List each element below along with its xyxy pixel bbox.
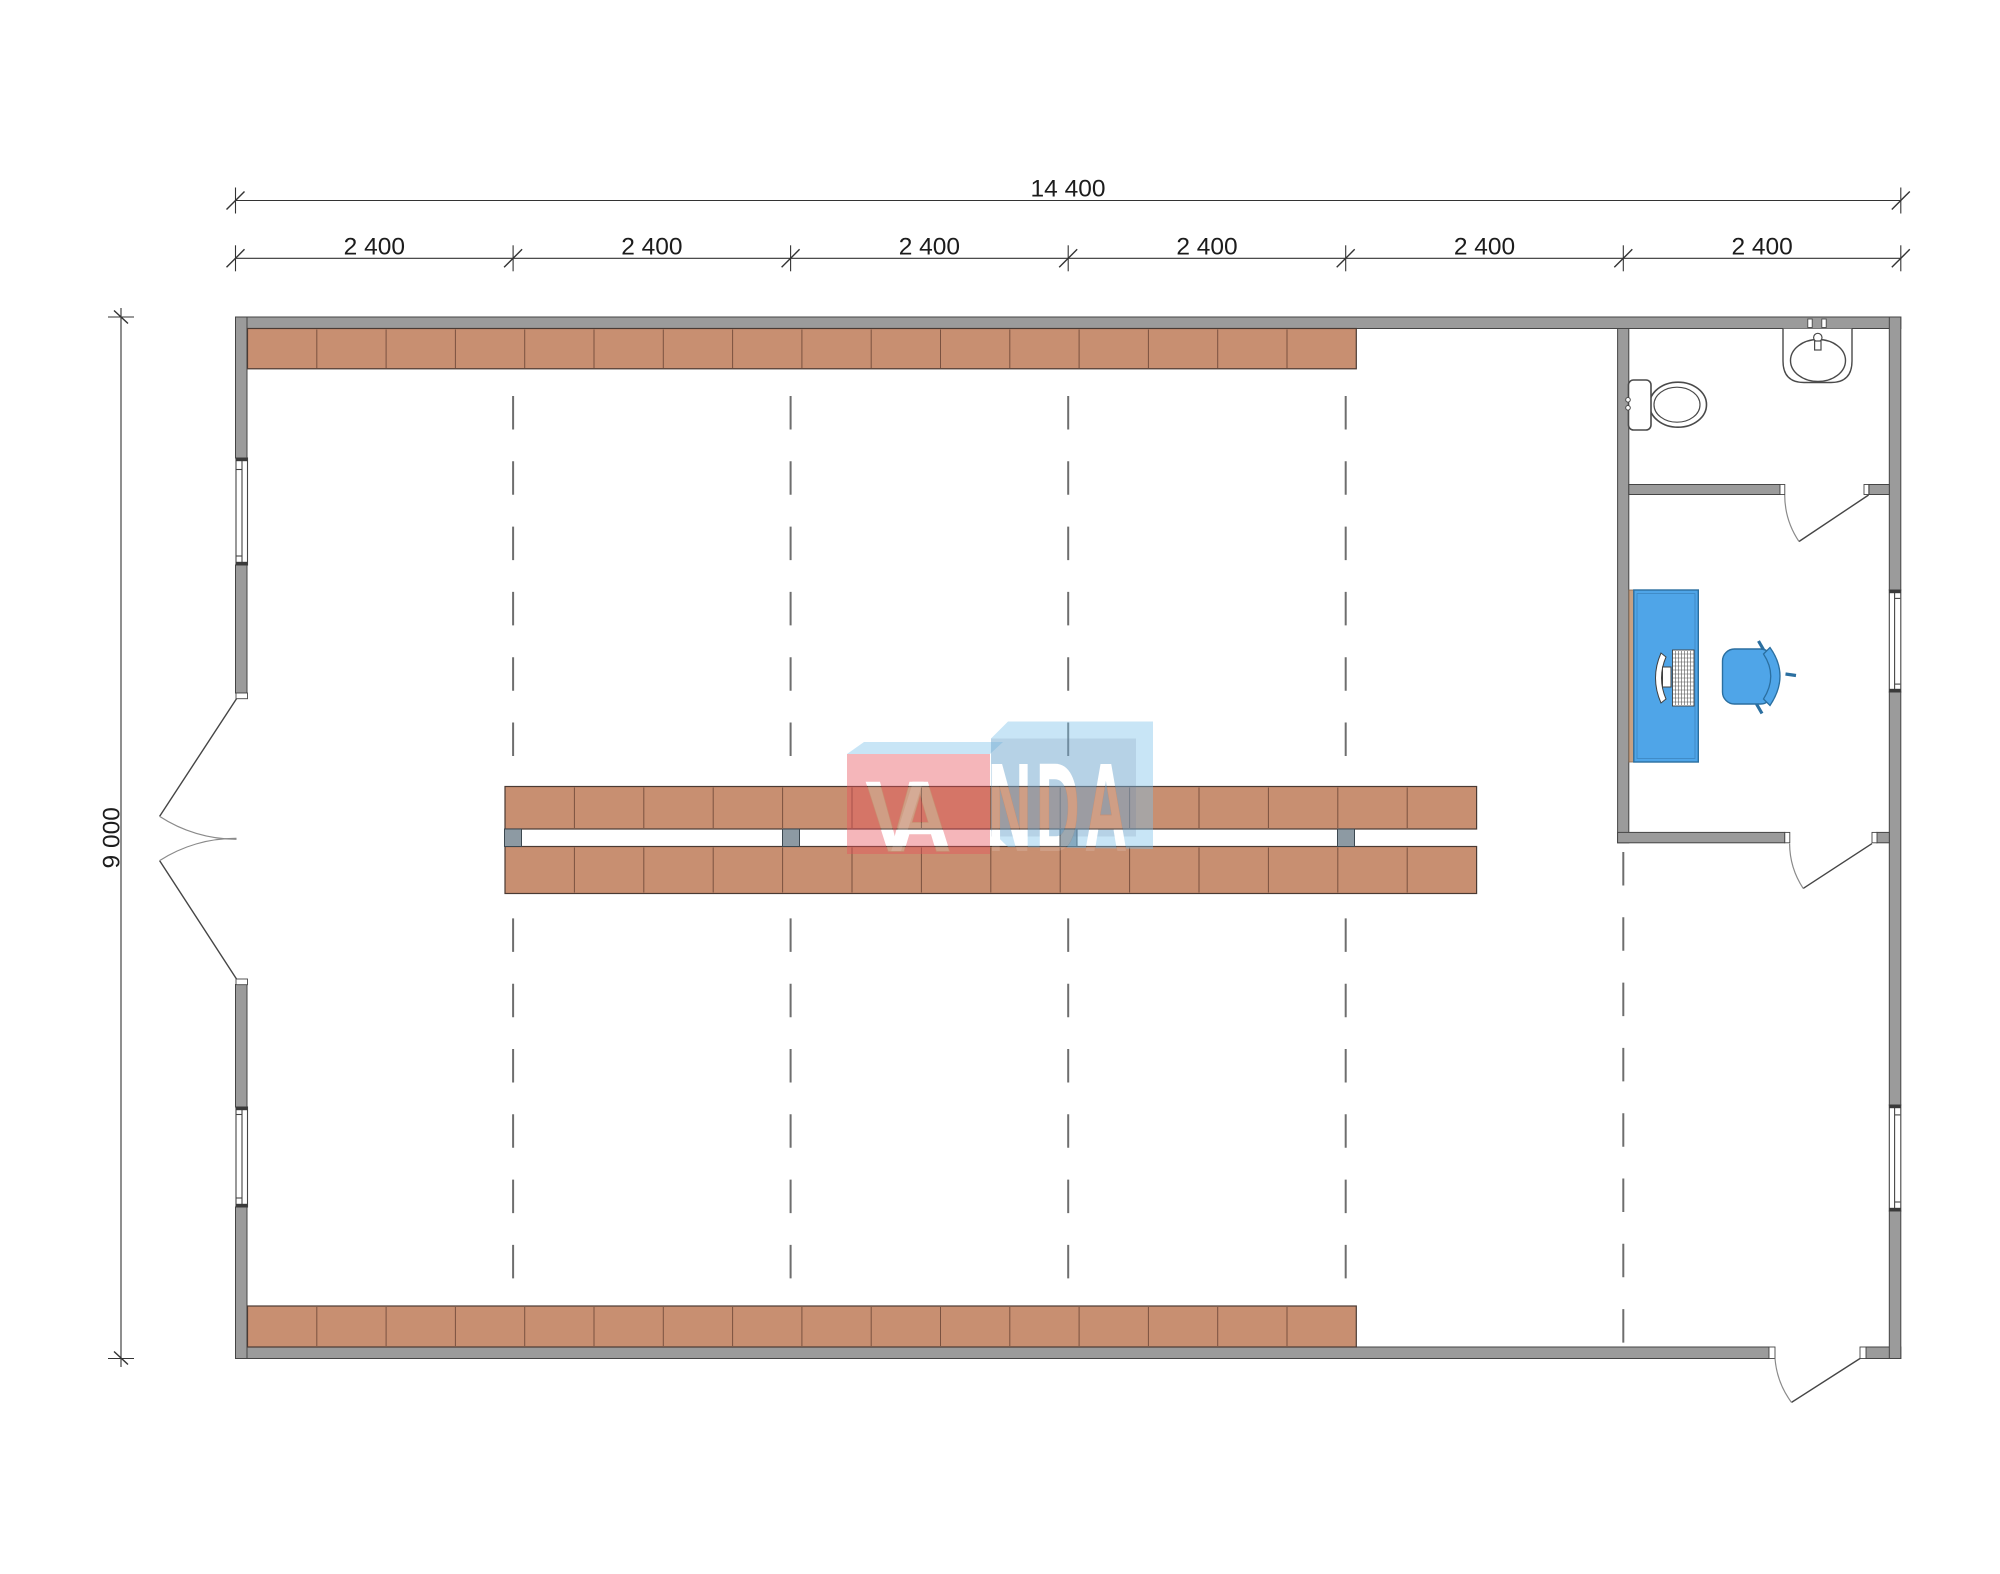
svg-text:9 000: 9 000 [99,807,126,868]
svg-text:NDA: NDA [988,738,1132,878]
svg-text:2 400: 2 400 [621,234,682,261]
svg-text:2 400: 2 400 [1731,234,1792,261]
svg-text:2 400: 2 400 [899,234,960,261]
svg-text:14 400: 14 400 [1031,176,1106,203]
svg-text:2 400: 2 400 [344,234,405,261]
svg-text:2 400: 2 400 [1176,234,1237,261]
svg-text:2 400: 2 400 [1454,234,1515,261]
